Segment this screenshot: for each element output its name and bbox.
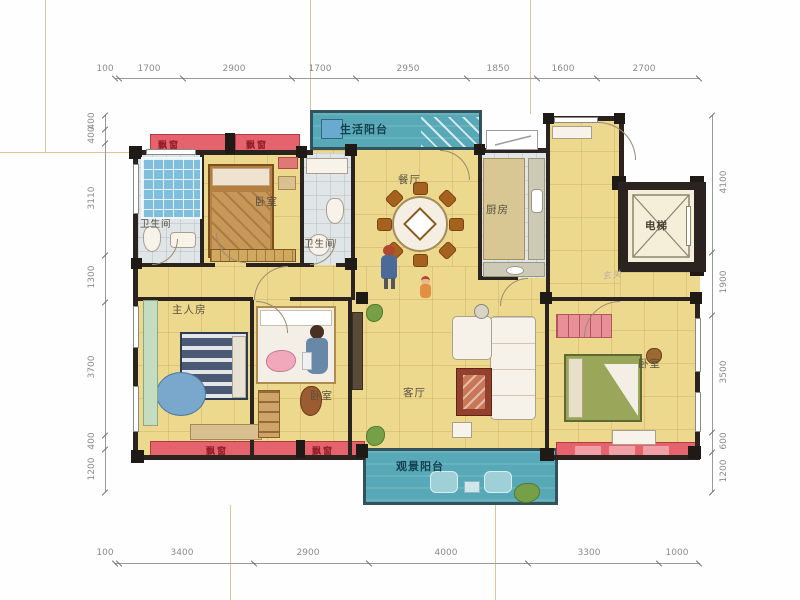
dining-chair-icon bbox=[413, 254, 428, 267]
column bbox=[345, 258, 357, 270]
dim-label: 4000 bbox=[424, 548, 468, 558]
tv-cabinet-icon bbox=[352, 312, 363, 390]
room-label-bath-b: 卫生间 bbox=[304, 236, 336, 250]
coffee-table-icon bbox=[456, 368, 492, 416]
bay-seat bbox=[575, 446, 601, 455]
shelf-icon bbox=[258, 390, 280, 438]
wall bbox=[133, 455, 365, 460]
lamp-icon bbox=[474, 304, 489, 319]
dining-table-icon bbox=[392, 196, 448, 252]
view-balcony bbox=[363, 448, 558, 505]
dim-line-top bbox=[115, 78, 700, 79]
dim-label: 3400 bbox=[160, 548, 204, 558]
floor-corridor bbox=[620, 272, 700, 300]
bench-icon bbox=[612, 430, 656, 445]
kitchen-sink-icon bbox=[531, 189, 543, 213]
window bbox=[133, 164, 139, 214]
toilet-icon bbox=[326, 198, 344, 224]
column bbox=[131, 258, 142, 269]
dim-label: 1900 bbox=[719, 260, 729, 304]
shower-icon bbox=[141, 157, 202, 219]
pig-toy-icon bbox=[266, 350, 296, 372]
dim-label: 2700 bbox=[622, 64, 666, 74]
room-label-foyer: 玄关 bbox=[601, 267, 623, 283]
plant-icon bbox=[514, 483, 540, 503]
column bbox=[345, 144, 357, 156]
room-label-bath-a: 卫生间 bbox=[140, 216, 172, 230]
wall bbox=[135, 263, 215, 267]
sofa-icon bbox=[490, 316, 536, 420]
shoe-cabinet-icon bbox=[552, 126, 592, 139]
dim-label: 1700 bbox=[298, 64, 342, 74]
room-label-master: 主人房 bbox=[172, 302, 207, 317]
wall bbox=[351, 148, 355, 300]
dim-label: 1600 bbox=[541, 64, 585, 74]
nightstand-icon bbox=[278, 176, 296, 190]
sofa-chaise-icon bbox=[452, 316, 492, 360]
person-body-icon bbox=[381, 255, 397, 279]
column bbox=[474, 144, 485, 155]
dim-label: 100 bbox=[83, 548, 127, 558]
room-label-bedroom-a: 卧室 bbox=[255, 194, 278, 209]
column bbox=[356, 292, 368, 304]
guide-line bbox=[530, 0, 531, 114]
dim-label: 4100 bbox=[719, 160, 729, 204]
column bbox=[131, 450, 144, 463]
column bbox=[225, 133, 235, 154]
child-body-icon bbox=[420, 284, 431, 298]
balcony-table-icon bbox=[464, 481, 480, 493]
pillow-icon bbox=[568, 358, 583, 418]
guide-line bbox=[495, 505, 496, 600]
room-label-elevator: 电梯 bbox=[645, 218, 668, 233]
window bbox=[554, 117, 598, 123]
service-balcony bbox=[310, 110, 482, 150]
pillow-icon bbox=[212, 168, 270, 186]
dim-tick bbox=[102, 489, 108, 495]
wall bbox=[478, 148, 482, 280]
curtain-icon bbox=[143, 300, 158, 426]
table-center-icon bbox=[403, 207, 437, 241]
pillow-icon bbox=[232, 336, 246, 398]
wall bbox=[546, 118, 550, 300]
room-label-living: 客厅 bbox=[403, 385, 426, 400]
dim-label: 1700 bbox=[127, 64, 171, 74]
dim-label: 1300 bbox=[87, 255, 97, 299]
dresser-icon bbox=[190, 424, 262, 440]
wall bbox=[290, 297, 352, 301]
dim-label: 100 bbox=[83, 64, 127, 74]
room-label-service-balcony: 生活阳台 bbox=[340, 121, 388, 137]
dim-label: 1200 bbox=[87, 447, 97, 491]
guide-line bbox=[230, 505, 231, 600]
column bbox=[614, 113, 625, 124]
side-table-icon bbox=[452, 422, 472, 438]
blanket-fold-icon bbox=[604, 364, 638, 416]
balcony-chair-icon bbox=[430, 471, 458, 493]
wall bbox=[545, 300, 549, 458]
dresser-icon bbox=[278, 157, 298, 169]
person-leg-icon bbox=[384, 278, 388, 289]
dim-label: 1850 bbox=[476, 64, 520, 74]
basin-icon bbox=[506, 266, 524, 275]
wall bbox=[545, 297, 700, 301]
column bbox=[540, 292, 552, 304]
window bbox=[146, 149, 196, 155]
dim-label: 400 bbox=[87, 113, 97, 157]
guide-line bbox=[0, 152, 135, 153]
dim-label: 3300 bbox=[567, 548, 611, 558]
elevator-door bbox=[686, 206, 691, 246]
fridge-icon bbox=[486, 130, 538, 150]
drying-rack-icon bbox=[421, 117, 479, 147]
dim-label: 3700 bbox=[87, 345, 97, 389]
window bbox=[695, 392, 701, 432]
dim-label: 1000 bbox=[655, 548, 699, 558]
table-runner-icon bbox=[463, 375, 485, 409]
dim-label: 3110 bbox=[87, 176, 97, 220]
book-icon bbox=[302, 352, 312, 370]
room-label-dining: 餐厅 bbox=[398, 172, 421, 187]
kitchen-counter-icon bbox=[483, 262, 545, 277]
column bbox=[296, 440, 305, 458]
column bbox=[688, 446, 701, 459]
column bbox=[356, 444, 368, 458]
room-label-bedroom-c: 卧室 bbox=[638, 356, 661, 371]
bay-seat bbox=[609, 446, 635, 455]
column bbox=[540, 448, 554, 461]
rug-icon bbox=[156, 372, 206, 416]
person-leg-icon bbox=[391, 278, 395, 289]
guide-line bbox=[45, 0, 46, 152]
dim-label: 2950 bbox=[386, 64, 430, 74]
column bbox=[690, 292, 702, 304]
window bbox=[133, 306, 139, 348]
person-head-icon bbox=[310, 325, 324, 339]
room-label-kitchen: 厨房 bbox=[486, 202, 509, 217]
dim-label: 3500 bbox=[719, 350, 729, 394]
dining-chair-icon bbox=[377, 218, 392, 231]
kitchen-counter-icon bbox=[528, 158, 545, 260]
dim-line-right bbox=[712, 115, 713, 492]
floor-plan: 100 1700 2900 1700 2950 1850 1600 2700 1… bbox=[0, 0, 800, 600]
dim-tick bbox=[709, 489, 715, 495]
dim-label: 2900 bbox=[286, 548, 330, 558]
balcony-chair-icon bbox=[484, 471, 512, 493]
room-label-bedroom-b: 卧室 bbox=[310, 388, 333, 403]
vanity-icon bbox=[306, 158, 348, 174]
door-arc bbox=[598, 122, 636, 160]
dining-chair-icon bbox=[449, 218, 464, 231]
wall bbox=[545, 455, 700, 460]
column bbox=[543, 113, 554, 124]
dim-line-bottom bbox=[115, 563, 700, 564]
window bbox=[133, 386, 139, 432]
dim-label: 1200 bbox=[719, 449, 729, 493]
dim-label: 2900 bbox=[212, 64, 256, 74]
window bbox=[695, 318, 701, 372]
guide-line bbox=[310, 0, 311, 114]
room-label-view-balcony: 观景阳台 bbox=[396, 458, 444, 474]
bay-seat bbox=[643, 446, 669, 455]
fridge-glyph bbox=[487, 131, 539, 151]
bed-icon bbox=[564, 354, 642, 422]
